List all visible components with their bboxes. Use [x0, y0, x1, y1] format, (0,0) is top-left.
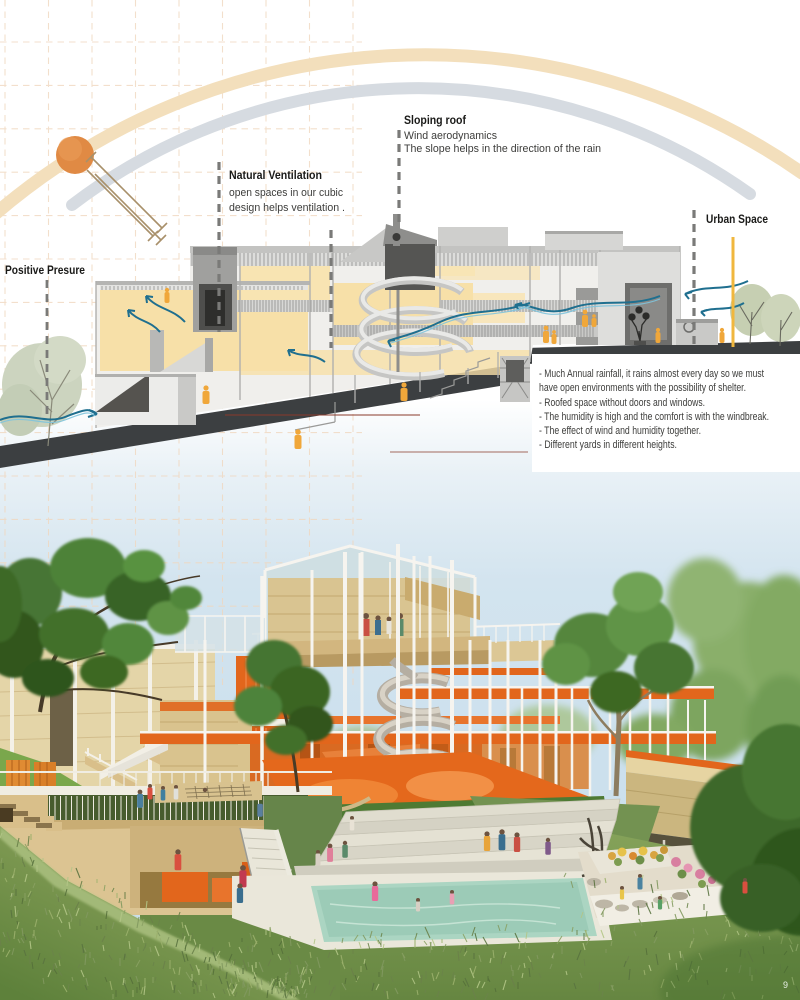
svg-text:open spaces in our cubic: open spaces in our cubic — [229, 187, 343, 199]
svg-text:- The effect of wind and humid: - The effect of wind and humidity togeth… — [539, 425, 701, 437]
svg-text:Urban Space: Urban Space — [706, 212, 768, 226]
svg-text:Wind aerodynamics: Wind aerodynamics — [404, 130, 497, 142]
svg-text:Positive Presure: Positive Presure — [5, 263, 85, 277]
svg-text:9: 9 — [783, 980, 788, 990]
svg-text:The slope helps in the directi: The slope helps in the direction of the … — [404, 143, 601, 155]
svg-text:design helps ventilation .: design helps ventilation . — [229, 202, 345, 214]
svg-text:- Roofed space without doors a: - Roofed space without doors and windows… — [539, 397, 705, 409]
svg-text:- Much Annual rainfall, it rai: - Much Annual rainfall, it rains almost … — [539, 368, 764, 380]
svg-text:- Different yards in different: - Different yards in different heights. — [539, 439, 677, 451]
svg-text:- The humidity is high and the: - The humidity is high and the comfort i… — [539, 411, 769, 423]
svg-text:Natural Ventilation: Natural Ventilation — [229, 168, 322, 182]
svg-text:Sloping roof: Sloping roof — [404, 113, 467, 127]
svg-text:have open environments with th: have open environments with the possibil… — [539, 382, 746, 394]
